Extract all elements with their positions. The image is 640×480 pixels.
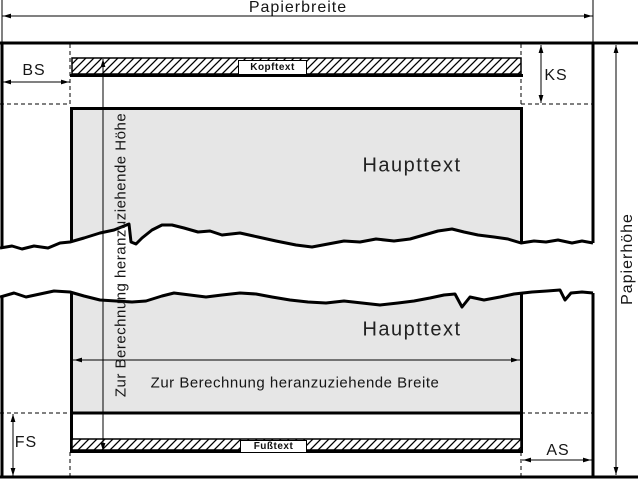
margin-right-label: AS xyxy=(546,442,569,460)
margin-footer-label: FS xyxy=(15,434,37,452)
calc-width-label: Zur Berechnung heranzuziehende Breite xyxy=(151,375,440,392)
margin-header-label: KS xyxy=(544,67,567,85)
calc-height-label: Zur Berechnung heranzuziehende Höhe xyxy=(113,113,130,397)
header-text-tag: Kopftext xyxy=(238,60,307,75)
body-text-label-top: Haupttext xyxy=(362,155,461,178)
footer-text-tag: Fußtext xyxy=(240,440,307,453)
paper-height-label: Papierhöhe xyxy=(619,213,637,305)
dimension-paper-height xyxy=(614,45,619,475)
paper-width-label: Papierbreite xyxy=(249,0,347,17)
dimension-bs xyxy=(2,80,70,85)
body-text-label-bottom: Haupttext xyxy=(362,319,461,342)
margin-left-label: BS xyxy=(22,62,45,80)
dimension-ks xyxy=(539,45,544,103)
page-layout-diagram: Papierbreite Papierhöhe BS KS FS AS Kopf… xyxy=(0,0,640,480)
